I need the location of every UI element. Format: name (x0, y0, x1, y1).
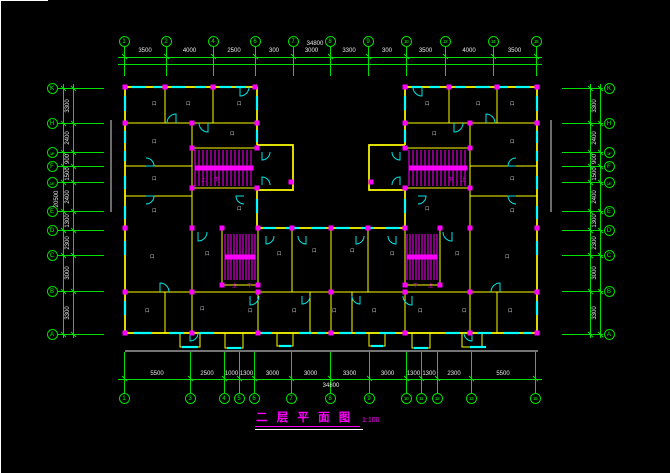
dimension-label: 1300 (592, 214, 598, 227)
axis-bubble: F (604, 161, 615, 172)
dimension-label: 2400 (65, 190, 71, 203)
room-label: 口 (152, 101, 157, 107)
column-marker (290, 226, 295, 231)
axis-extension-line (562, 88, 603, 89)
column-marker (535, 290, 540, 295)
room-labels: 上下下上上下下上口口口口口口口口口口口口口口口口口口口口口口口口口口口口口口口口… (145, 101, 515, 314)
room-label: 口 (152, 139, 157, 145)
column-marker (535, 226, 540, 231)
column-marker (255, 186, 260, 191)
dimension-label: 1500 (65, 167, 71, 180)
dimension-label: 2400 (592, 131, 598, 144)
column-marker (123, 331, 128, 336)
door-swing (403, 296, 412, 305)
axis-stem (190, 379, 191, 393)
axis-bubble: 1 (119, 393, 130, 404)
axis-stem (291, 379, 292, 393)
axis-bubble: 9 (363, 36, 374, 47)
door-swing (146, 196, 154, 204)
room-label: 口 (292, 308, 297, 314)
axis-stem (535, 379, 536, 393)
dimension-label: 1000 (225, 371, 238, 377)
dimension-label: 3300 (343, 371, 356, 377)
column-marker (255, 146, 260, 151)
axis-bubble: A (604, 329, 615, 340)
axis-bubble: B (604, 286, 615, 297)
column-marker (403, 226, 408, 231)
axis-stem (224, 379, 225, 393)
dimension-label: 3500 (419, 48, 432, 54)
column-marker (369, 180, 374, 185)
column-marker (535, 331, 540, 336)
column-marker (403, 331, 408, 336)
column-marker (468, 121, 473, 126)
axis-bubble: K (604, 83, 615, 94)
room-label: 口 (152, 208, 157, 214)
column-marker (256, 290, 261, 295)
stair-rail (409, 166, 467, 170)
axis-extension-line (330, 57, 331, 76)
axis-extension-line (213, 57, 214, 76)
column-marker (190, 226, 195, 231)
dimension-label: 5500 (150, 371, 163, 377)
door-swing (240, 87, 249, 96)
door-swing (352, 296, 360, 304)
room-label: 口 (390, 251, 395, 257)
room-label: 口 (145, 308, 150, 314)
room-label: 口 (230, 131, 235, 137)
door-swing (443, 232, 452, 241)
dimension-label: 34800 (307, 41, 324, 47)
axis-bubble: 8 (325, 393, 336, 404)
axis-extension-line (406, 57, 407, 76)
axis-bubble: E (604, 206, 615, 217)
axis-bubble: 10 (401, 36, 412, 47)
dimension-label: 1300 (240, 371, 253, 377)
dimension-label: 300 (382, 48, 392, 54)
dimension-label: 2300 (592, 236, 598, 249)
axis-bubble: A (47, 329, 58, 340)
room-label: 口 (350, 248, 355, 254)
drawing-title: 二 层 平 面 图 (256, 409, 353, 425)
title-underline-magenta (255, 426, 360, 427)
axis-bubble: 5 (234, 393, 245, 404)
floor-plan-drawing: 上下下上上下下上口口口口口口口口口口口口口口口口口口口口口口口口口口口口口口口口… (0, 0, 670, 473)
door-swing (198, 232, 207, 241)
dimension-label: 3300 (592, 306, 598, 319)
stair-direction-label: 下 (214, 177, 219, 183)
axis-bubble: C (604, 250, 615, 261)
column-marker (495, 85, 500, 90)
column-marker (220, 283, 225, 288)
room-label: 口 (510, 101, 515, 107)
stair-rail (407, 255, 437, 259)
axis-stem (254, 379, 255, 393)
column-marker (329, 226, 334, 231)
axis-bubble: 11 (416, 393, 427, 404)
door-swing (302, 296, 310, 304)
dimension-label: 5500 (496, 371, 509, 377)
room-label: 口 (425, 206, 430, 212)
column-marker (468, 146, 473, 151)
door-swing (392, 152, 400, 160)
dimension-label: 3000 (65, 266, 71, 279)
column-marker (403, 283, 408, 288)
door-swing (413, 87, 422, 96)
axis-bubble: 14 (488, 36, 499, 47)
room-label: 口 (432, 131, 437, 137)
room-label: 口 (186, 101, 191, 107)
room-label: 口 (505, 254, 510, 260)
column-marker (190, 121, 195, 126)
axis-bubble: 1/F (47, 147, 58, 158)
axis-bubble: 10 (401, 393, 412, 404)
dimension-label: 2500 (227, 48, 240, 54)
axis-bubble: 2 (161, 36, 172, 47)
column-marker (123, 290, 128, 295)
room-label: 口 (248, 308, 253, 314)
axis-bubble: 7 (288, 36, 299, 47)
axis-bubble: 9 (364, 393, 375, 404)
room-label: 口 (200, 306, 205, 312)
dimension-label: 300 (269, 48, 279, 54)
axis-extension-line (369, 352, 370, 379)
room-label: 口 (508, 308, 513, 314)
column-marker (253, 85, 258, 90)
door-swing (356, 236, 364, 244)
column-marker (163, 85, 168, 90)
axis-stem (421, 379, 422, 393)
column-marker (190, 186, 195, 191)
axis-bubble: 12 (432, 393, 443, 404)
axis-bubble: 4 (219, 393, 230, 404)
axis-stem (124, 379, 125, 393)
room-label: 口 (510, 176, 515, 182)
door-swing (266, 236, 274, 244)
axis-extension-line (437, 352, 438, 379)
room-label: 口 (312, 248, 317, 254)
column-marker (535, 85, 540, 90)
door-swing (298, 236, 306, 244)
stair-rail (225, 255, 255, 259)
column-marker (123, 85, 128, 90)
dimension-label: 1300 (65, 214, 71, 227)
room-label: 口 (150, 254, 155, 260)
column-marker (190, 146, 195, 151)
room-label: 口 (205, 251, 210, 257)
column-marker (123, 121, 128, 126)
column-marker (447, 85, 452, 90)
stair-rail (195, 166, 253, 170)
column-marker (468, 290, 473, 295)
column-marker (329, 290, 334, 295)
axis-bubble: 1/E (604, 177, 615, 188)
partition-walls (125, 87, 537, 348)
stair-direction-label: 下 (413, 283, 418, 289)
stair-direction-label: 上 (201, 176, 206, 183)
axis-extension-line (166, 57, 167, 76)
column-marker (403, 290, 408, 295)
stair-direction-label: 下 (247, 283, 252, 289)
dimension-label: 3000 (304, 371, 317, 377)
column-marker (256, 331, 261, 336)
column-marker (403, 186, 408, 191)
axis-extension-line (291, 352, 292, 379)
column-marker (329, 331, 334, 336)
axis-extension-line (124, 352, 125, 379)
door-swing (418, 196, 426, 204)
axis-extension-line (562, 334, 603, 335)
axis-bubble: D (604, 225, 615, 236)
dimension-label: 4000 (462, 48, 475, 54)
axis-bubble: 15 (530, 393, 541, 404)
axis-bubble: 12 (440, 36, 451, 47)
door-swing (236, 196, 244, 204)
column-marker (256, 283, 261, 288)
axis-bubble: 13 (466, 393, 477, 404)
dimension-label: 1500 (592, 167, 598, 180)
stair-direction-label: 下 (448, 177, 453, 183)
column-marker (403, 146, 408, 151)
axis-extension-line (562, 211, 603, 212)
dimension-label: 2300 (447, 371, 460, 377)
column-marker (190, 290, 195, 295)
axis-bubble: F (47, 161, 58, 172)
stair-direction-label: 上 (428, 282, 433, 289)
drawing-scale: 1:100 (362, 417, 380, 424)
dimension-label: 2400 (65, 131, 71, 144)
column-marker (289, 180, 294, 185)
axis-bubble: 4 (208, 36, 219, 47)
column-marker (211, 85, 216, 90)
column-marker (220, 226, 225, 231)
axis-bubble: 1/F (604, 147, 615, 158)
dimension-label: 3500 (508, 48, 521, 54)
column-marker (468, 226, 473, 231)
axis-bubble: B (47, 286, 58, 297)
dimension-label: 900 (592, 154, 598, 164)
axis-stem (471, 379, 472, 393)
room-label: 口 (462, 308, 467, 314)
room-label: 口 (476, 101, 481, 107)
door-swing (392, 177, 400, 185)
axis-extension-line (562, 230, 603, 231)
axis-bubble: 1 (119, 36, 130, 47)
room-label: 口 (510, 208, 515, 214)
column-marker (403, 85, 408, 90)
door-swing (454, 123, 463, 132)
stair-direction-label: 上 (232, 282, 237, 289)
door-swing (491, 283, 500, 292)
title-underline-white (255, 429, 363, 430)
room-label: 口 (332, 308, 337, 314)
cad-viewport: 上下下上上下下上口口口口口口口口口口口口口口口口口口口口口口口口口口口口口口口口… (0, 0, 670, 473)
door-swing (146, 158, 154, 166)
dimension-label: 1300 (422, 371, 435, 377)
axis-bubble: K (47, 83, 58, 94)
dimension-label: 3000 (381, 371, 394, 377)
axis-bubble: 1/E (47, 177, 58, 188)
axis-bubble: 6 (249, 393, 260, 404)
axis-extension-line (293, 57, 294, 76)
door-swing (262, 177, 270, 185)
axis-extension-line (562, 123, 603, 124)
axis-bubble: 3 (185, 393, 196, 404)
column-marker (438, 283, 443, 288)
axis-stem (406, 379, 407, 393)
column-marker (255, 121, 260, 126)
column-marker (123, 226, 128, 231)
column-marker (366, 226, 371, 231)
column-marker (190, 331, 195, 336)
door-swing (486, 114, 495, 123)
dimension-label: 3300 (592, 99, 598, 112)
axis-bubble: 7 (286, 393, 297, 404)
dimension-label: 3000 (592, 266, 598, 279)
axis-extension-line (190, 352, 191, 379)
dimension-label: 2500 (200, 371, 213, 377)
dimension-label: 20500 (54, 191, 60, 208)
dimension-label: 900 (65, 154, 71, 164)
axis-bubble: D (47, 225, 58, 236)
axis-extension-line (562, 152, 603, 153)
dimension-label: 1300 (407, 371, 420, 377)
axis-extension-line (124, 57, 125, 76)
axis-extension-line (535, 352, 536, 379)
axis-extension-line (368, 57, 369, 76)
door-swing (508, 158, 516, 166)
axis-extension-line (562, 182, 603, 183)
door-swing (508, 196, 516, 204)
dimension-label: 3500 (138, 48, 151, 54)
axis-bubble: 8 (325, 36, 336, 47)
axis-extension-line (562, 291, 603, 292)
room-label: 口 (237, 101, 242, 107)
axis-bubble: C (47, 250, 58, 261)
dimension-label: 3300 (342, 48, 355, 54)
stair-direction-label: 上 (461, 176, 466, 183)
column-marker (535, 121, 540, 126)
dimension-label: 2300 (65, 236, 71, 249)
axis-extension-line (445, 57, 446, 76)
axis-extension-line (493, 57, 494, 76)
dimension-label: 3300 (65, 306, 71, 319)
axis-extension-line (330, 352, 331, 379)
axis-extension-line (254, 352, 255, 379)
axis-extension-line (536, 57, 537, 76)
door-swing (160, 283, 169, 292)
column-marker (468, 331, 473, 336)
axis-extension-line (471, 352, 472, 379)
axis-extension-line (562, 255, 603, 256)
dimension-label: 3000 (305, 48, 318, 54)
axis-bubble: 15 (531, 36, 542, 47)
door-swing (262, 152, 270, 160)
column-marker (256, 226, 261, 231)
dimension-label: 3300 (65, 99, 71, 112)
dimension-label: 34800 (323, 383, 340, 389)
dimension-label: 4000 (183, 48, 196, 54)
axis-bubble: H (47, 118, 58, 129)
axis-bubble: H (604, 118, 615, 129)
room-label: 口 (152, 176, 157, 182)
room-label: 口 (277, 251, 282, 257)
dimension-label: 3000 (266, 371, 279, 377)
door-swing (167, 114, 176, 123)
axis-extension-line (255, 57, 256, 76)
room-label: 口 (425, 101, 430, 107)
room-label: 口 (237, 206, 242, 212)
column-marker (403, 121, 408, 126)
door-swing (199, 123, 208, 132)
column-marker (468, 186, 473, 191)
door-swing (388, 236, 396, 244)
axis-stem (437, 379, 438, 393)
room-label: 口 (455, 251, 460, 257)
dimension-label: 2400 (592, 190, 598, 203)
axis-bubble: 6 (250, 36, 261, 47)
room-label: 口 (418, 308, 423, 314)
room-label: 口 (372, 308, 377, 314)
room-label: 口 (510, 139, 515, 145)
axis-stem (369, 379, 370, 393)
axis-stem (239, 379, 240, 393)
column-marker (438, 226, 443, 231)
